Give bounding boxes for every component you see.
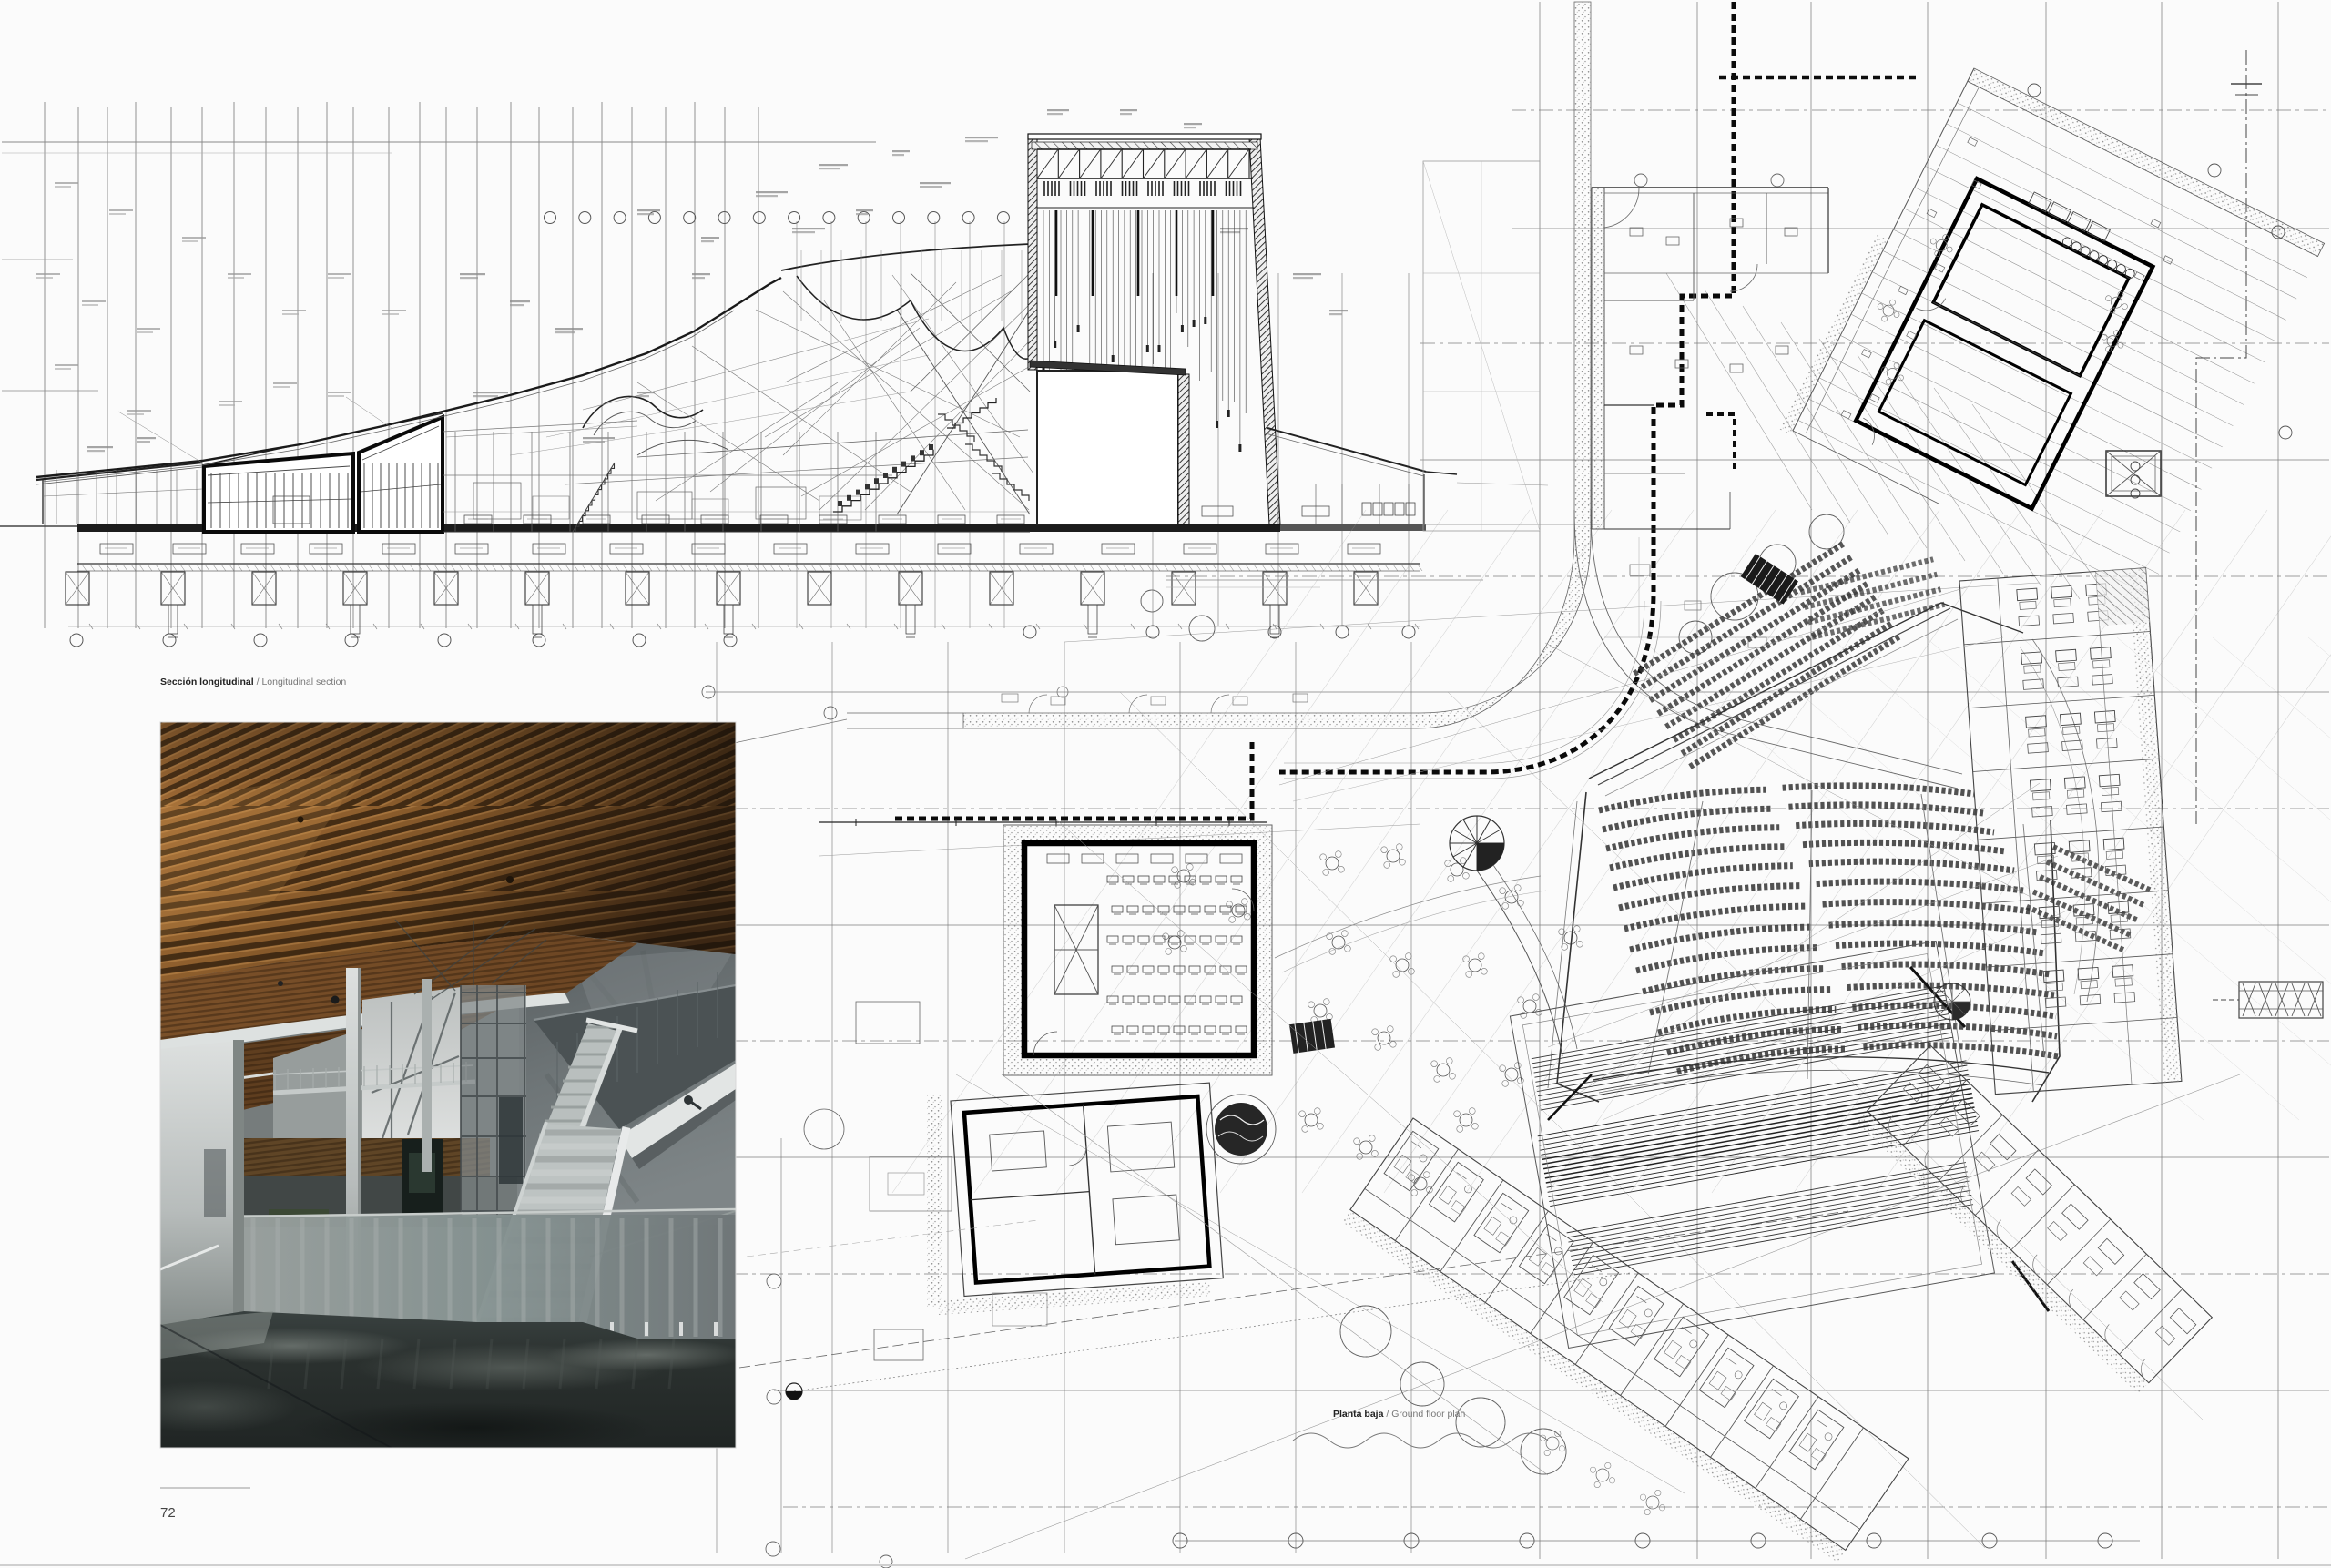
svg-text:Sección longitudinal / Longitu: Sección longitudinal / Longitudinal sect… — [160, 677, 346, 687]
svg-text:72: 72 — [160, 1505, 176, 1521]
svg-text:Planta baja / Ground floor pla: Planta baja / Ground floor plan — [1333, 1409, 1465, 1420]
